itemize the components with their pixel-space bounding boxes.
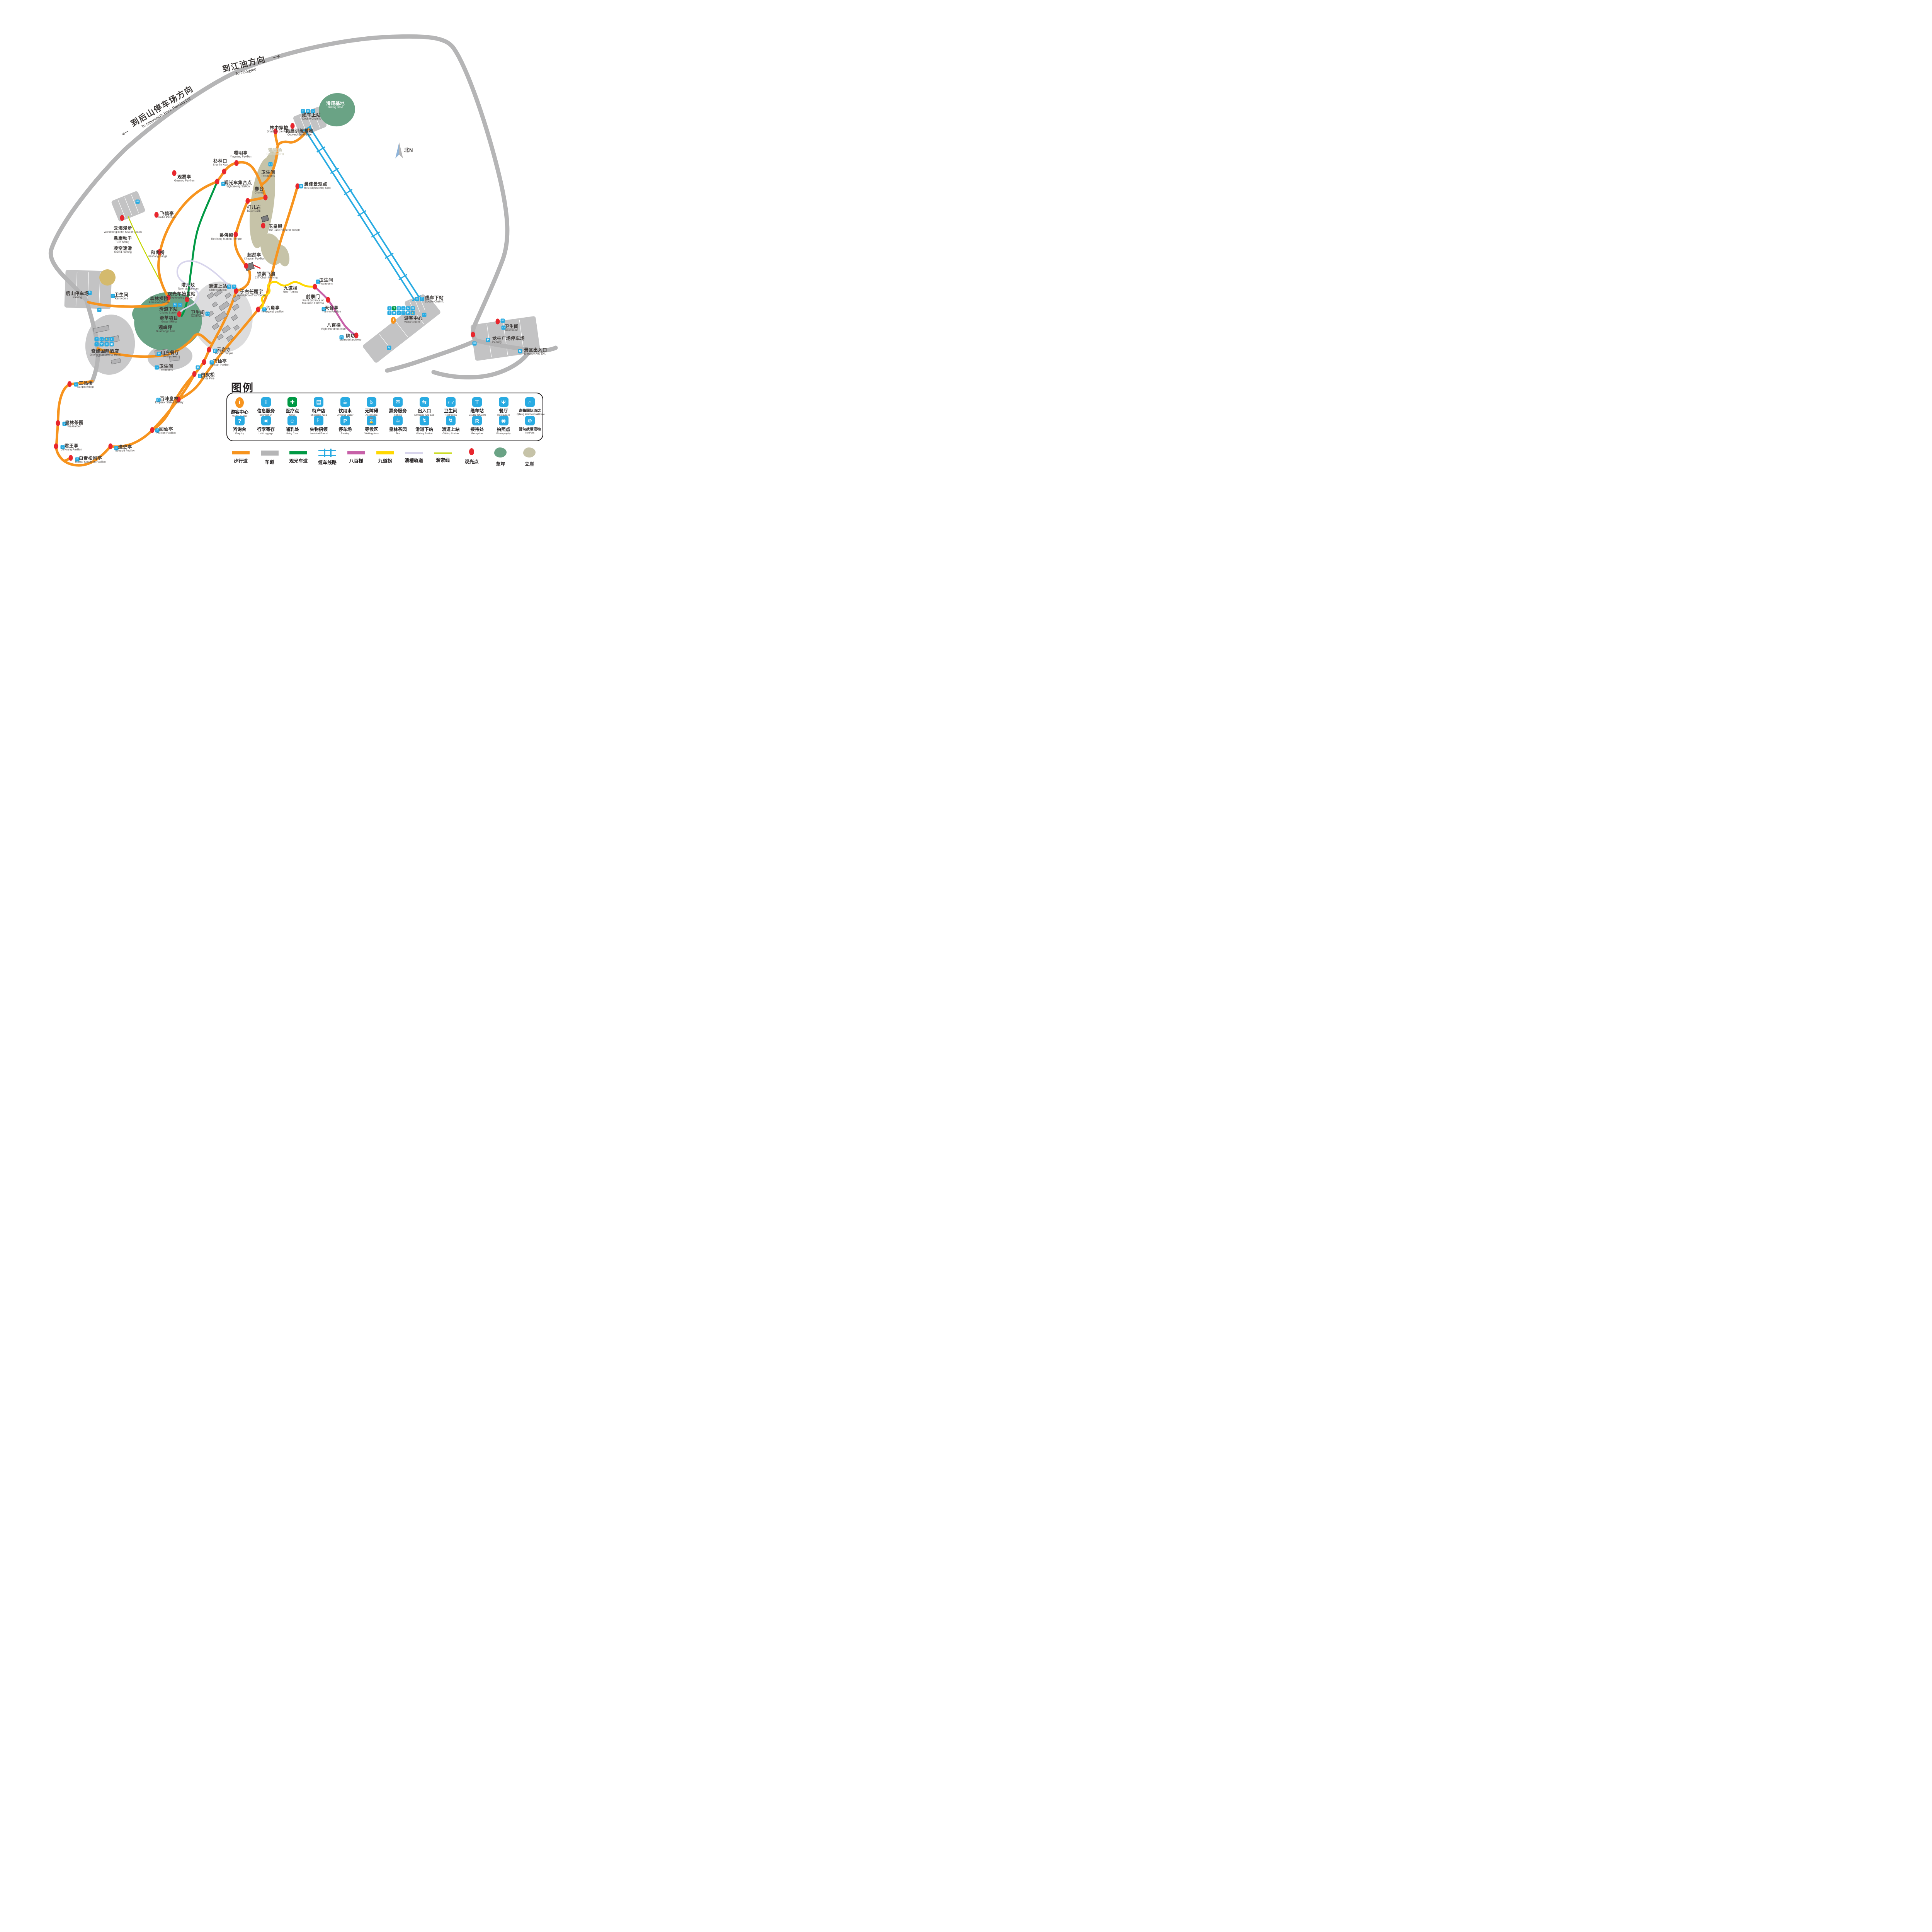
legend-item-photography: ◉拍照点Photography [490,416,517,435]
poi-rock-climbing-zh: 攀岩场 [266,148,284,153]
legend-swatch-lawn [494,447,507,457]
walking-path [158,182,217,298]
luggage-icon[interactable]: ▣ [110,342,114,347]
legend-line-sight-spot: 观光点 [457,447,486,465]
compass-icon [399,142,403,158]
poi-huixian-pavilion: 回仙亭Huixian Pavilion [156,427,176,434]
poi-white-pine: 白皮松White Pine [201,372,215,380]
poi-best-sightseeing-spot: 最佳景观点Best Sightseeing Spot [304,182,331,189]
camera-icon[interactable]: ◉ [196,366,200,370]
legend-line-vehicle-road-label: 车道 [255,459,284,465]
poi-cliff-swing: 悬崖秋千Cliff Swing [114,236,132,243]
legend-line-sightseeing-road: 观光车道 [284,447,313,464]
legend-no-pets-en: No Pets [517,432,543,434]
legend-item-tickets: ✉票务服务Tickets [385,397,411,417]
poi-villa-restaurant: 山庄餐厅Restaurant [161,350,179,358]
legend-item-restrooms: ♀♂卫生间Restrooms [437,397,464,417]
hotel-icon[interactable]: ⌂ [95,342,99,347]
poi-restrooms-far-east: 卫生间Restrooms [505,324,519,332]
poi-memorial-archway-en: Memorial archway [340,338,362,341]
poi-restrooms-mid-en: Restrooms [191,315,205,318]
sight-spot-dot[interactable] [192,371,197,377]
poi-eight-hundred-stairs-zh: 八百梯 [321,323,347,328]
poi-gliding-base-zh: 滑翔基地 [326,101,345,106]
legend-reception-zh: 接待处 [464,426,490,432]
poi-guanfeng-lawn-en: Guanfeng Lawn [156,330,175,333]
legend-line-eight-hundred-stairs-label: 八百梯 [342,457,371,464]
poi-shanlin-kou-zh: 杉林口 [213,159,228,163]
legend-gliding-up-zh: 滑道上站 [437,426,464,432]
water-icon: ☕ [340,397,350,407]
restrooms-icon: ♀♂ [446,397,456,407]
sight-spot-dot[interactable] [56,420,60,426]
sight-spot-dot[interactable] [150,427,155,433]
poi-restrooms-far-east-en: Restrooms [505,329,519,332]
legend-lost-and-found-en: Lost And Found [306,432,332,435]
poi-back-parking: 后山停车场Parking [66,291,89,299]
legend-item-lost-and-found: ⚐失物招领Lost And Found [306,416,332,435]
poi-gliding-down-station-en: Gliding Station [159,311,178,314]
legend-line-cliff-label: 立崖 [515,461,544,467]
legend-photography-zh: 拍照点 [490,426,517,432]
restrooms-icon[interactable]: ♀♂ [422,313,427,317]
babycare-icon[interactable]: ☺ [397,311,401,315]
tickets-icon[interactable]: ✉ [501,319,505,323]
poi-yunyan-temple-en: Yunyan Temple [214,352,233,355]
sight-spot-dot[interactable] [215,179,219,185]
poi-gliding-down-station-zh: 滑道下站 [159,307,178,311]
legend-item-left-luggage: ▣行李寄存Left Luggage [253,416,279,435]
poi-emperor-statue-gallery-en: Emperor Statue Gallery [155,401,183,404]
poi-speed-skating-zh: 凌空速滑 [114,246,132,251]
legend-item-clinic: ✚医疗点Clinic [279,397,306,417]
poi-speed-skating: 凌空速滑Speed Skating [114,246,132,253]
legend-baby-care-en: Baby Care [279,432,306,435]
water-icon[interactable]: ☕ [401,306,406,311]
poi-baixue-songfeng-pavilion-zh: 白雪松风亭 [75,456,106,461]
poi-songshi-pavilion: 送史亭Songshi Pavilion [115,445,135,452]
visitor-icon[interactable]: i [391,317,396,324]
poi-forest-adventure-zh: 森林探险 [149,296,169,301]
poi-yunyan-temple-zh: 云岩寺 [214,347,233,352]
poi-yu-youren-inscription: 于右任题字Inscription of Yu Youren [237,289,265,297]
poi-jade-emperor-temple-zh: 玉皇殿 [269,224,300,229]
sight-spot-dot[interactable] [155,212,159,218]
poi-eight-hundred-stairs-en: Eight Hundred Stairs [321,328,347,330]
luggage-icon[interactable]: ▣ [392,311,396,315]
poi-yingming-pavilion: 嘤明亭Yingming Pavilion [230,151,251,158]
poi-eight-hundred-stairs: 八百梯Eight Hundred Stairs [321,323,347,330]
poi-taer-mausoleum: 塔儿坟Ta’er Mausoleum [178,283,198,290]
poi-cable-top-station-en: Double Chairlift [302,117,321,120]
poi-gliding-top-station-zh: 滑道上站 [209,284,227,289]
legend-line-cable-line: 缆车线路 [313,447,342,466]
sight-spot-dot[interactable] [235,160,239,166]
legend-line-cable-line-label: 缆车线路 [313,459,342,466]
legend-line-sight-spot-label: 观光点 [457,458,486,465]
poi-cloud-sea-walk-en: Wondering in the Sea of Clouds [104,231,142,233]
parking-icon[interactable]: P [406,311,410,315]
babycare-icon: ☺ [287,416,297,425]
poi-cliff-chain-walking: 铁索飞渡Cliff Chain Walking [255,272,278,279]
poi-yunyan-temple: 云岩寺Yunyan Temple [214,347,233,355]
legend-hotel-zh: 奇峰国际酒店 [517,408,543,413]
poi-sanpin-bridge-en: Sanpin Bridge [77,386,94,388]
poi-shuttle-in-forest-zh: 林中穿梭 [267,126,291,130]
poi-restrooms-east-en: Restrooms [319,282,333,285]
legend-double-chairlift-zh: 缆车站 [464,408,490,414]
poi-shuttle-in-forest-en: Shuttle in the Forest [267,130,291,133]
poi-sightseeing-start: 观光车始发站Sightseeing Station [168,292,196,299]
legend-line-zipline: 溜索线 [429,447,457,463]
legend-hotel-en: Qifeng International Hotel [517,413,543,416]
sight-spot-dot[interactable] [246,198,250,204]
poi-yingming-pavilion-en: Yingming Pavilion [230,155,251,158]
nopets-icon: ⊘ [525,416,535,425]
legend-item-accessible: ♿无障碍Accessible [359,397,385,417]
poi-shuttle-in-forest: 林中穿梭Shuttle in the Forest [267,126,291,133]
poi-yingming-pavilion-zh: 嘤明亭 [230,151,251,155]
poi-restrooms-west-en: Restrooms [114,297,128,300]
legend-item-reception: R接待处Reception [464,416,490,435]
legend-item-no-pets: ⊘请勿携带宠物No Pets [517,416,543,434]
poi-chuntai-en: Chuntai [255,191,264,194]
gliding-icon: ↯ [446,416,456,425]
legend-line-walkway-label: 步行道 [226,457,255,464]
walking-path [111,400,179,447]
poi-shanlin-kou: 杉林口Shanlin Kou [213,159,228,166]
poi-gliding-down-station: 滑道下站Gliding Station [159,307,178,314]
legend-gliding-down-zh: 滑道下站 [411,426,437,432]
hotel-icon: ⌂ [525,397,535,407]
poi-longzhu-parking-en: Parking [492,341,525,344]
legend-enquiry-zh: 咨询台 [226,426,253,432]
parking-icon[interactable]: P [486,338,490,342]
poi-restrooms-west: 卫生间Restrooms [114,293,128,300]
poi-emperor-statue-gallery-zh: 百味皇林 [155,396,183,401]
poi-restrooms-west-zh: 卫生间 [114,293,128,297]
poi-rock-climbing: 攀岩场Rock Climbing [266,148,284,155]
tea-icon: ☕ [393,416,403,425]
poi-speed-skating-en: Speed Skating [114,251,132,253]
luggage-icon: ▣ [261,416,271,425]
poi-nine-turning-zh: 九道拐 [283,286,298,291]
exit-icon[interactable]: ⇆ [387,346,391,350]
poi-hexagonal-pavilion: 六角亭hexagonal pavilion [262,306,284,313]
tickets-icon[interactable]: ✉ [178,303,182,307]
legend-item-visitor-center: i游客中心Visitor center [226,397,253,418]
tickets-icon[interactable]: ✉ [136,200,140,204]
enquiry-icon: ? [235,416,245,425]
poi-cable-bottom-station-zh: 缆车下站 [425,296,444,300]
poi-feihe-pavilion: 飞鹤亭Feihe Pavilion [158,211,175,219]
poi-memorial-archway: 牌坊Memorial archway [340,334,362,341]
poi-baixue-songfeng-pavilion-en: Baixue Songfeng Pavilion [75,461,106,463]
accessible-icon[interactable]: ♿ [406,306,410,311]
poi-guanfeng-lawn-zh: 观峰坪 [156,325,175,330]
legend-photography-en: Photography [490,432,517,435]
poi-sanpin-bridge: 三品桥Sanpin Bridge [77,381,94,388]
poi-heshang-bridge-zh: 和尚桥 [148,250,167,255]
poi-hexagonal-pavilion-en: hexagonal pavilion [262,310,284,313]
poi-emperor-statue-gallery: 百味皇林Emperor Statue Gallery [155,396,183,404]
waiting-icon[interactable]: ⌛ [105,337,109,342]
poi-sightseeing-start-en: Sightseeing Station [168,296,196,299]
legend-waiting-area-zh: 等候区 [359,426,385,432]
poi-guanwu-pavilion-zh: 观雾亭 [174,175,195,179]
poi-sightseeing-meet-zh: 观光车集合点 [224,180,252,185]
poi-best-sightseeing-spot-en: Best Sightseeing Spot [304,187,331,189]
cliff-chain-segment [253,265,260,268]
poi-junwang-pavilion-zh: 君王亭 [61,444,82,448]
poi-reclining-buddha: 卧佛殿Reclining Buddha Temple [211,233,241,240]
poi-tianyin-pavilion: 天音亭Tianyin Pavilion [322,306,341,313]
legend-item-double-chairlift: ⊤缆车站Double Chairlift [464,397,490,417]
info-icon: i [261,397,271,407]
poi-villa-restaurant-en: Restaurant [161,355,179,358]
poi-baixue-songfeng-pavilion: 白雪松风亭Baixue Songfeng Pavilion [75,456,106,463]
legend-left-luggage-zh: 行李寄存 [253,426,279,432]
legend-item-enquiry: ?咨询台Enquiry [226,416,253,435]
legend-line-cliff: 立崖 [515,447,544,467]
poi-cable-bottom-station: 缆车下站Double Chairlift [425,296,444,303]
accessible-icon: ♿ [367,397,376,407]
poi-tianyin-pavilion-en: Tianyin Pavilion [322,310,341,313]
poi-reclining-buddha-zh: 卧佛殿 [211,233,241,238]
legend-parking-zh: 停车场 [332,426,358,432]
poi-chuntai: 春台Chuntai [255,187,264,194]
restrooms-icon[interactable]: ♀♂ [155,366,159,370]
sight-spot-dot[interactable] [471,332,475,338]
nopets-icon[interactable]: ⊘ [105,342,109,347]
scenic-area-map: 到江油方向 To Jiangyou → 到后山停车场方向 To Mountain… [0,0,597,480]
legend-item-waiting-area: ⌛等候区Waiting Area [359,416,385,435]
poi-cloud-sea-walk: 云海漫步Wondering in the Sea of Clouds [104,226,142,233]
tickets-icon[interactable]: ✉ [473,342,477,346]
poi-tianyin-pavilion-zh: 天音亭 [322,306,341,310]
poi-cloud-sea-walk-zh: 云海漫步 [104,226,142,231]
poi-feixian-pavilion-zh: 飞仙亭 [210,359,229,364]
poi-scenic-entrance-exit-en: Entrance And Exit [524,352,547,355]
sight-spot-dot[interactable] [202,359,206,365]
poi-sightseeing-meet-en: Sightseeing Station [224,185,252,188]
legend-swatch-sight-spot [469,448,474,455]
legend-item-shopping-area: ▤特产店Shopping Area [306,397,332,417]
tickets-icon[interactable]: ✉ [411,306,415,311]
waiting-icon: ⌛ [367,416,376,425]
poi-taer-mausoleum-en: Ta’er Mausoleum [178,287,198,290]
tickets-icon: ✉ [393,397,403,407]
parking-icon[interactable]: P [95,337,99,342]
sight-spot-dot[interactable] [120,215,124,221]
legend-gliding-down-en: Gliding Station [411,432,437,435]
sight-spot-dot[interactable] [109,444,113,449]
poi-white-pine-zh: 白皮松 [201,372,215,377]
poi-qifeng-hotel: 奇峰国际酒店Qifeng International Hotel [90,349,120,356]
visitor-icon: i [235,397,244,408]
legend-line-chute-track-label: 滑槽轨道 [400,457,428,464]
tickets-icon[interactable]: ✉ [232,285,236,289]
lostfound-icon: ⚐ [314,416,323,425]
legend-tea-en: Tea [385,432,411,435]
sight-spot-dot[interactable] [326,297,330,303]
poi-taer-mausoleum-zh: 塔儿坟 [178,283,198,287]
exit-icon: ⇆ [420,397,429,407]
sight-spot-dot[interactable] [207,347,211,353]
legend-line-sightseeing-road-label: 观光车道 [284,457,313,464]
poi-gliding-top-station: 滑道上站Gliding Station [209,284,227,291]
shopping-icon[interactable]: ▤ [397,306,401,311]
sight-spot-dot[interactable] [68,381,72,387]
poi-feihe-pavilion-zh: 飞鹤亭 [158,211,175,216]
poi-visitor-center: 游客中心Visitor center [404,316,423,323]
legend-visitor-center-zh: 游客中心 [226,409,253,415]
legend-item-tea: ☕皇林茶园Tea [385,416,411,435]
poi-visitor-center-en: Visitor center [404,321,423,323]
poi-restrooms-north-zh: 卫生间 [261,170,275,175]
poi-front-entrance-fortress-en: Front Entrance of Mountain Fortress [302,299,324,305]
chairlift-icon[interactable]: ⊤ [420,297,424,301]
legend-swatch-zipline [434,452,452,454]
poi-gliding-base: 滑翔基地Gliding Base [326,101,345,109]
poi-tea-garden: 皇林茶园Tea Garden [65,420,83,428]
camera-icon[interactable]: ◉ [299,184,303,189]
poi-chaoran-pavilion-en: Chaoran Pavilion [244,257,264,260]
poi-restrooms-east: 卫生间Restrooms [319,278,333,285]
legend-item-gliding-up: ↯滑道上站Gliding Station [437,416,464,435]
enquiry-icon[interactable]: ? [388,311,392,315]
poi-cliff-swing-zh: 悬崖秋千 [114,236,132,241]
legend-item-drinking-water: ☕饮用水Drinking Water [332,397,358,417]
poi-cliff-chain-walking-en: Cliff Chain Walking [255,276,278,279]
legend-reception-en: Reception [464,432,490,435]
poi-guanfeng-lawn: 观峰坪Guanfeng Lawn [156,325,175,333]
legend-enquiry-en: Enquiry [226,432,253,435]
sight-spot-dot[interactable] [313,284,317,290]
poi-restrooms-far-east-zh: 卫生间 [505,324,519,329]
legend-line-chute-track: 滑槽轨道 [400,447,428,464]
legend-item-entrance-exit: ⇆出入口Entrance And Exit [411,397,437,417]
poi-grass-skiing: 滑草项目Grass Skiing [160,316,178,323]
restrooms-icon[interactable]: ♀♂ [100,337,104,342]
tickets-icon[interactable]: ✉ [97,308,102,312]
sight-spot-dot[interactable] [256,307,260,313]
legend-left-luggage-en: Left Luggage [253,432,279,435]
poi-forest-adventure: 森林探险Forest Adventure [149,296,169,304]
legend-shopping-area-zh: 特产店 [306,408,332,414]
restaurant-icon: Ψ [499,397,509,407]
legend-line-vehicle-road: 车道 [255,447,284,465]
legend-tickets-zh: 票务服务 [385,408,411,414]
poi-gliding-top-station-en: Gliding Station [209,289,227,291]
exit-icon[interactable]: ⇆ [518,349,522,354]
legend-parking-en: Parking [332,432,358,435]
chairlift-icon: ⊤ [472,397,482,407]
compass-north-label: 北N [404,146,413,153]
legend-swatch-chute-track [405,452,423,454]
restaurant-icon[interactable]: Ψ [100,342,104,347]
poi-forest-adventure-en: Forest Adventure [149,301,169,304]
poi-junwang-pavilion: 君王亭Junwang Pavilion [61,444,82,451]
poi-huixian-pavilion-zh: 回仙亭 [156,427,176,432]
poi-hexagonal-pavilion-zh: 六角亭 [262,306,284,310]
legend-line-nine-turning: 九道拐 [371,447,400,464]
parking-icon: P [340,416,350,425]
clinic-icon[interactable]: ✚ [392,306,396,311]
tickets-icon[interactable]: ✉ [415,297,419,301]
gliding-icon[interactable]: ↯ [227,285,231,289]
lawn-area [132,306,148,323]
poi-songshi-pavilion-zh: 送史亭 [115,445,135,449]
vehicle-road [387,340,476,371]
poi-outward-bund-base-en: Outward-Bund Base [286,133,313,136]
poi-qifeng-hotel-zh: 奇峰国际酒店 [90,349,120,354]
legend-line-zipline-label: 溜索线 [429,457,457,463]
poi-reclining-buddha-en: Reclining Buddha Temple [211,238,241,240]
poi-cable-bottom-station-en: Double Chairlift [425,300,444,303]
legend-entrance-exit-zh: 出入口 [411,408,437,414]
poi-tea-garden-en: Tea Garden [65,425,83,428]
poi-villa-restaurant-zh: 山庄餐厅 [161,350,179,355]
poi-sightseeing-meet: 观光车集合点Sightseeing Station [224,180,252,188]
legend-item-gliding-down: ↯滑道下站Gliding Station [411,416,437,435]
sight-spot-dot[interactable] [222,169,226,175]
poi-visitor-center-zh: 游客中心 [404,316,423,321]
poi-nine-turning: 九道拐Nine Turning [283,286,298,293]
legend-tea-zh: 皇林茶园 [385,426,411,432]
legend-line-lawn: 草坪 [486,447,515,467]
restrooms-icon[interactable]: ♀♂ [206,312,210,316]
legend-gliding-up-en: Gliding Station [437,432,464,435]
sight-spot-dot[interactable] [264,195,268,201]
restaurant-icon[interactable]: Ψ [157,352,161,356]
sight-spot-dot[interactable] [496,319,500,325]
legend-information-zh: 信息服务 [253,408,279,414]
poi-grass-skiing-en: Grass Skiing [160,320,178,323]
legend-line-lawn-label: 草坪 [486,461,515,467]
poi-restrooms-mid: 卫生间Restrooms [191,310,205,318]
poi-restrooms-sw-zh: 卫生间 [159,364,173,369]
legend-swatch-sightseeing-road [289,451,307,454]
info-icon[interactable]: i [388,306,392,311]
info-icon[interactable]: i [110,337,114,342]
poi-longzhu-parking: 龙柱广场停车场Parking [492,336,525,344]
sight-spot-dot[interactable] [54,444,58,449]
poi-cable-top-station-zh: 缆车上站 [302,113,321,117]
legend-swatch-cliff [523,447,536,457]
poi-guanwu-pavilion: 观雾亭Guanwu Pavilion [174,175,195,182]
sight-spot-dot[interactable] [261,223,265,229]
legend-item-parking: P停车场Parking [332,416,358,435]
poi-rock-climbing-en: Rock Climbing [266,153,284,155]
waiting-icon[interactable]: ⌛ [411,311,415,315]
gliding-icon[interactable]: ↯ [173,303,177,307]
poi-restrooms-north: 卫生间Restrooms [261,170,275,177]
sight-spot-dot[interactable] [244,263,248,269]
poi-feixian-pavilion: 飞仙亭Feixian Pavilion [210,359,229,366]
poi-best-sightseeing-spot-zh: 最佳景观点 [304,182,331,187]
legend-swatch-vehicle-road [261,451,279,456]
legend-line-walkway: 步行道 [226,447,255,464]
poi-chuntai-zh: 春台 [255,187,264,191]
restrooms-icon[interactable]: ♀♂ [269,162,273,167]
poi-scenic-entrance-exit: 景区出入口Entrance And Exit [524,348,547,355]
reception-icon: R [472,416,482,425]
poi-white-pine-en: White Pine [201,377,215,380]
lostfound-icon[interactable]: ⚐ [401,311,406,315]
sight-spot-dot[interactable] [69,455,73,461]
legend-swatch-cable-line [318,450,336,456]
